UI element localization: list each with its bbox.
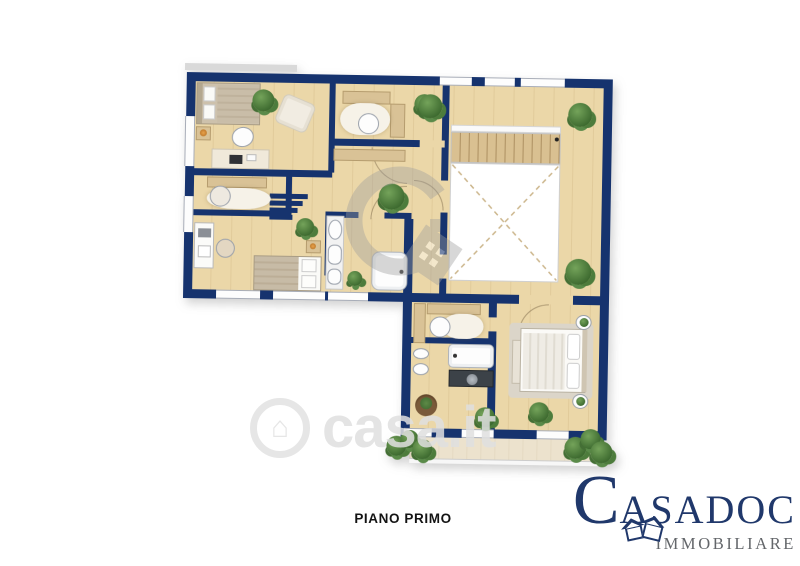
bench-icon bbox=[413, 303, 426, 343]
plant-icon bbox=[580, 318, 589, 327]
sideboard-icon bbox=[333, 149, 405, 162]
door-opening bbox=[439, 254, 446, 278]
floorplan-page: ⌂ casa.it PIANO PRIMO C ASADOC IMMOBILIA… bbox=[0, 0, 800, 566]
double-bed-icon bbox=[519, 328, 586, 393]
papers-icon bbox=[198, 245, 211, 257]
agency-initial: C bbox=[573, 474, 620, 529]
pillow bbox=[566, 363, 579, 389]
laptop-icon bbox=[229, 155, 242, 164]
lamp-icon bbox=[310, 243, 316, 249]
lamp-icon bbox=[200, 129, 207, 136]
single-bed-icon bbox=[196, 82, 261, 125]
pillow bbox=[301, 275, 316, 288]
vanity-counter-icon bbox=[448, 370, 493, 388]
pillow bbox=[567, 334, 580, 360]
pillow bbox=[203, 104, 215, 119]
window bbox=[521, 78, 565, 88]
pillow bbox=[203, 86, 215, 101]
monitor-icon bbox=[198, 228, 211, 237]
steps-icon bbox=[270, 193, 308, 199]
plant-icon bbox=[590, 441, 612, 463]
desk-icon bbox=[211, 148, 269, 169]
window bbox=[440, 76, 472, 86]
casa-it-watermark-text: casa.it bbox=[322, 394, 496, 461]
window bbox=[216, 290, 260, 300]
window bbox=[485, 77, 515, 87]
steps-icon bbox=[270, 200, 303, 206]
toilet-icon bbox=[413, 348, 429, 359]
steps-icon bbox=[269, 214, 292, 219]
window bbox=[273, 291, 325, 301]
newel-post bbox=[555, 137, 559, 141]
headboard bbox=[197, 83, 203, 123]
staircase-icon bbox=[450, 132, 561, 165]
window bbox=[184, 116, 195, 166]
agency-logo: C ASADOC IMMOBILIARE bbox=[614, 474, 796, 554]
casa-it-watermark: ⌂ casa.it bbox=[250, 394, 496, 461]
house-glyph: ⌂ bbox=[271, 413, 289, 443]
door-opening bbox=[519, 295, 573, 305]
bathtub-icon bbox=[448, 344, 494, 369]
steps-icon bbox=[269, 207, 297, 212]
blanket bbox=[254, 256, 299, 290]
pillow bbox=[301, 259, 316, 272]
sink-icon bbox=[467, 374, 478, 385]
faucet bbox=[453, 354, 457, 358]
bench-icon bbox=[390, 104, 406, 138]
roof-ledge bbox=[185, 63, 297, 72]
wall bbox=[489, 303, 497, 317]
blanket bbox=[522, 333, 565, 390]
window bbox=[183, 196, 194, 232]
desk-icon bbox=[194, 222, 215, 268]
window bbox=[328, 292, 368, 302]
house-in-circle-icon: ⌂ bbox=[250, 398, 310, 458]
twin-houses-icon bbox=[624, 516, 668, 544]
toilet-icon bbox=[328, 245, 342, 265]
papers-icon bbox=[246, 154, 256, 161]
bidet-icon bbox=[327, 269, 341, 285]
headboard bbox=[581, 330, 587, 392]
bidet-icon bbox=[413, 363, 429, 375]
door-opening bbox=[420, 140, 445, 147]
bathtub-icon bbox=[371, 251, 408, 291]
void-cross-lines bbox=[448, 163, 560, 283]
faucet bbox=[399, 270, 403, 274]
single-bed-icon bbox=[253, 255, 322, 291]
house-icon bbox=[641, 522, 663, 542]
